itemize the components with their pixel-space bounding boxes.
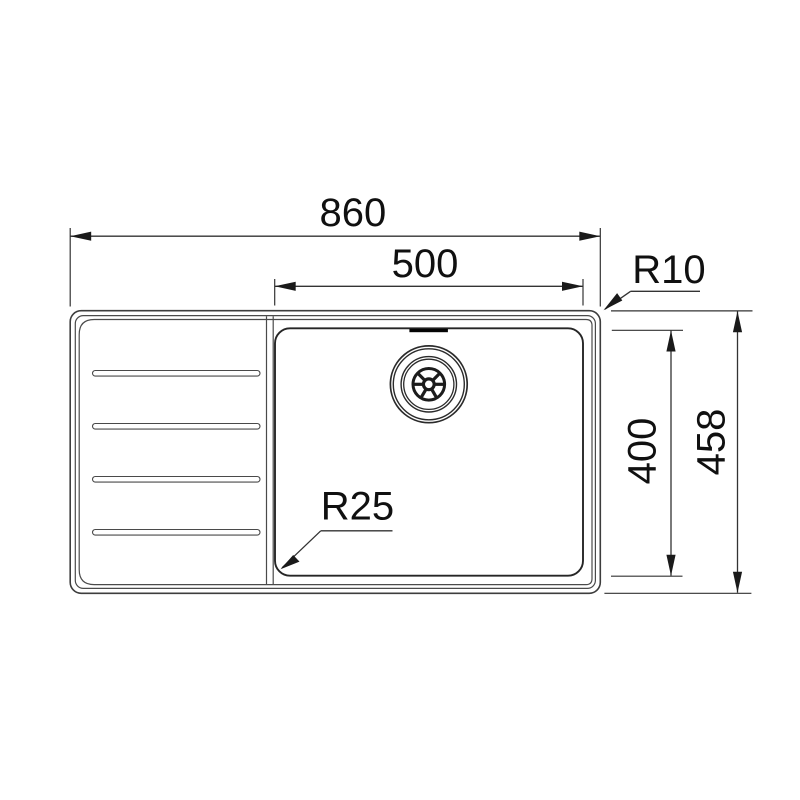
- svg-text:458: 458: [689, 409, 733, 476]
- svg-text:860: 860: [320, 191, 387, 235]
- svg-text:400: 400: [620, 418, 664, 485]
- svg-text:R25: R25: [321, 485, 394, 529]
- svg-text:500: 500: [392, 242, 459, 286]
- svg-text:R10: R10: [632, 248, 705, 292]
